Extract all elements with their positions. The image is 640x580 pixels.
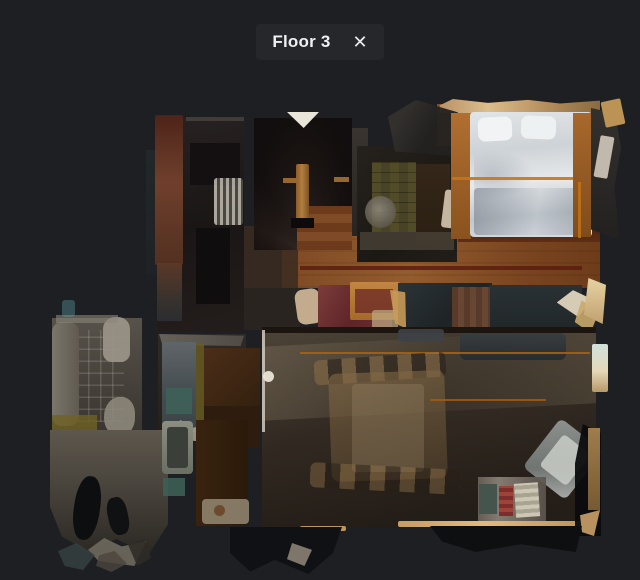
teal-basket	[163, 478, 185, 496]
orange-line-table	[430, 399, 546, 401]
pillow-right	[521, 115, 557, 139]
sofa-slab	[398, 329, 444, 342]
sofa-top	[460, 333, 566, 360]
bathtub	[52, 322, 79, 426]
vanity-mirror	[162, 342, 196, 432]
wall-strip-red	[155, 115, 183, 265]
books-white	[514, 482, 540, 518]
vanity-teal	[166, 388, 192, 414]
dog-bed	[202, 499, 249, 524]
hallway-red-stripe	[300, 266, 582, 270]
closet-floor-strip	[360, 232, 454, 250]
table-runner	[352, 384, 424, 472]
close-icon: ✕	[352, 32, 367, 52]
floorplan-view[interactable]	[0, 0, 640, 580]
bottom-center-dark	[230, 527, 342, 574]
bathroom-top-light	[56, 315, 118, 323]
right-frag-cyan	[592, 344, 608, 392]
pillow-left	[477, 116, 512, 142]
radiator	[214, 178, 243, 225]
bottom-right-dark	[430, 526, 582, 552]
brown-door	[204, 348, 260, 406]
floor-label: Floor 3	[272, 32, 330, 52]
seam-handle-dot	[263, 371, 274, 382]
bed-right-post	[573, 113, 591, 237]
bedroom-tan-frag	[601, 98, 626, 128]
close-button[interactable]: ✕	[352, 33, 367, 51]
viewer-canvas: Floor 3 ✕	[0, 0, 640, 580]
shelf-teal-box	[479, 484, 497, 514]
headboard-wall	[440, 99, 600, 113]
bottom-left-furniture	[50, 430, 168, 554]
bathroom-yellow-strip	[52, 415, 97, 430]
post-base-dark	[291, 218, 314, 228]
bed-left-post	[451, 113, 471, 239]
duvet-folds	[474, 188, 588, 235]
wall-strip-lower	[157, 263, 182, 321]
room-landing-doorway	[196, 228, 230, 304]
room-landing-top-edge	[186, 117, 244, 121]
mirror-glass	[167, 427, 188, 468]
floor-label-panel: Floor 3 ✕	[256, 24, 383, 60]
books-red	[499, 486, 513, 516]
bed-frame-orange	[578, 182, 581, 238]
stair-crossbar-right	[334, 177, 349, 182]
washer-disc	[365, 196, 396, 228]
orange-line-upper	[300, 352, 590, 354]
hall-dark-lower	[244, 288, 300, 330]
dog-spot	[214, 505, 225, 516]
toilet	[103, 317, 130, 362]
right-frag-strip	[588, 428, 600, 510]
stair-crossbar-left	[283, 178, 297, 183]
